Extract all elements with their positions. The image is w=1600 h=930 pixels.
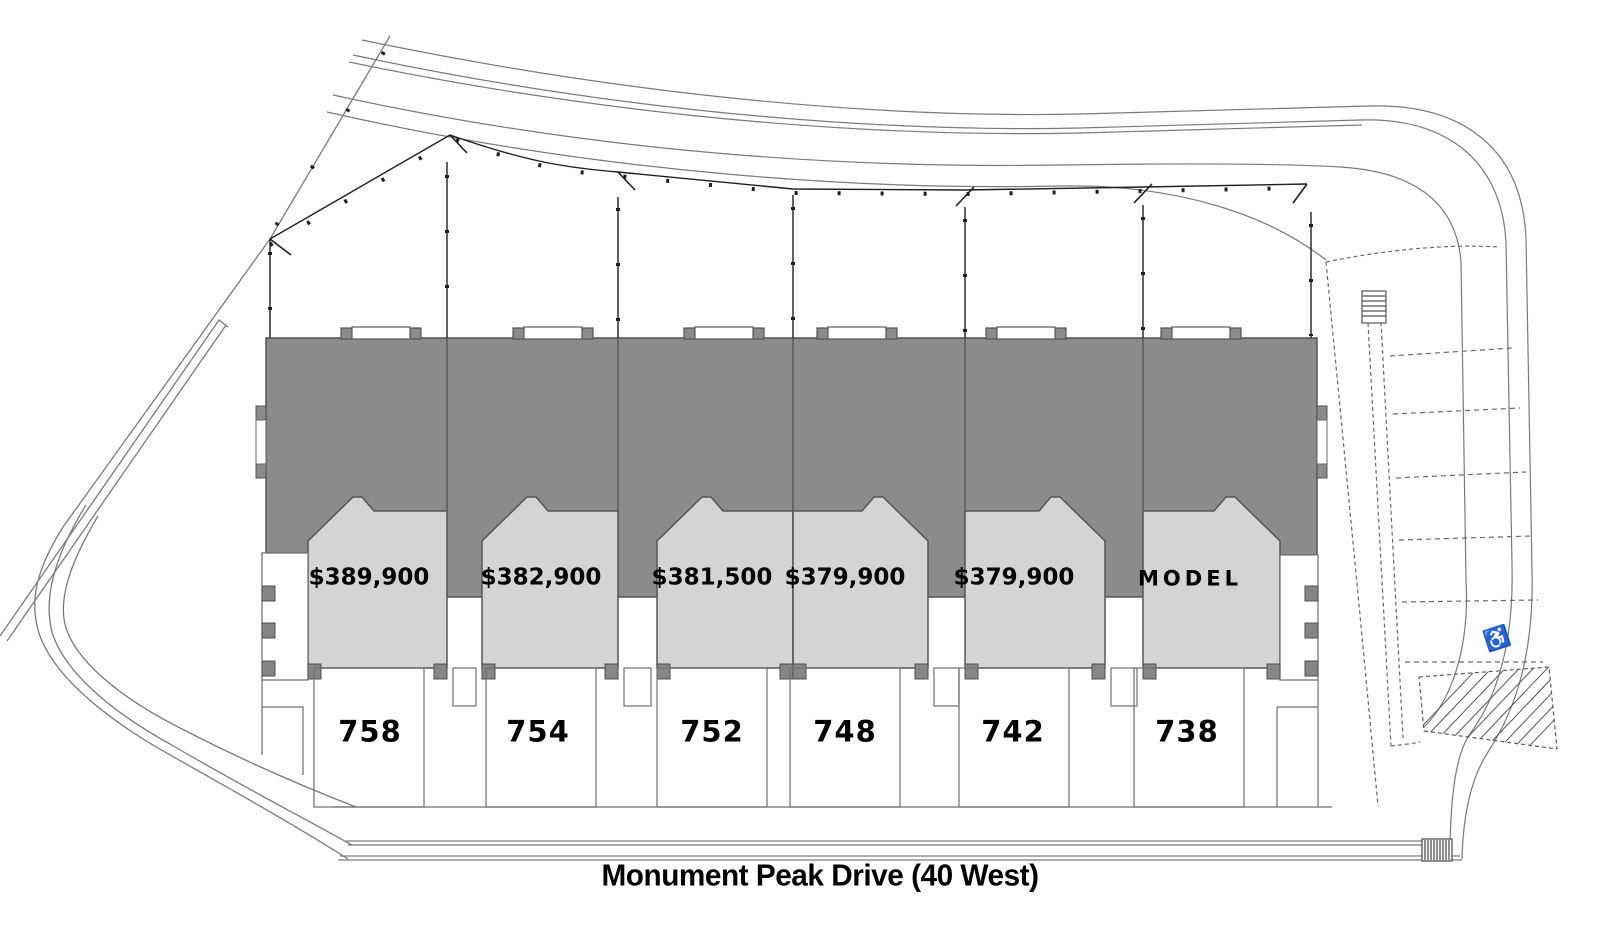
unit-price-label: $381,500 bbox=[652, 567, 773, 590]
unit-address: 742 bbox=[981, 718, 1045, 747]
unit-price-label: $382,900 bbox=[481, 567, 602, 590]
end-steps-left bbox=[262, 680, 303, 775]
hatched-area bbox=[1390, 655, 1600, 760]
parking-lot bbox=[1326, 246, 1600, 861]
survey-lines bbox=[270, 135, 1311, 338]
unit-address: 748 bbox=[813, 718, 877, 747]
sidewalk-strip bbox=[0, 320, 228, 641]
walkway-2 bbox=[624, 668, 651, 706]
unit-address: 752 bbox=[680, 718, 744, 747]
unit-address: 758 bbox=[338, 718, 402, 747]
unit-address: 738 bbox=[1155, 718, 1219, 747]
unit-model-label: MODEL bbox=[1138, 569, 1242, 590]
site-plan: $389,900 $382,900 $381,500 $379,900 $379… bbox=[0, 0, 1600, 930]
site-plan-drawing bbox=[0, 0, 1600, 930]
parking-top-edge bbox=[1326, 246, 1500, 262]
parking-boundary bbox=[1326, 262, 1378, 806]
survey-ticks bbox=[270, 135, 1307, 255]
stairs-icon bbox=[1362, 291, 1386, 323]
walkway-3 bbox=[934, 668, 959, 706]
survey-line-dots bbox=[270, 52, 1311, 336]
unit-price-label: $379,900 bbox=[954, 567, 1075, 590]
street-name-label: Monument Peak Drive (40 West) bbox=[601, 860, 1038, 891]
crosswalk bbox=[1422, 839, 1452, 861]
walkway-1 bbox=[453, 668, 476, 706]
unit-address: 754 bbox=[506, 718, 570, 747]
unit-price-label: $389,900 bbox=[309, 567, 430, 590]
unit-price-label: $379,900 bbox=[785, 567, 906, 590]
end-steps-right bbox=[1277, 680, 1318, 807]
parking-sidewalk bbox=[1368, 322, 1420, 746]
fence-line bbox=[270, 135, 1307, 239]
walkway-4 bbox=[1111, 668, 1137, 706]
street-lines bbox=[332, 807, 1462, 860]
rear-decks bbox=[341, 327, 1241, 339]
